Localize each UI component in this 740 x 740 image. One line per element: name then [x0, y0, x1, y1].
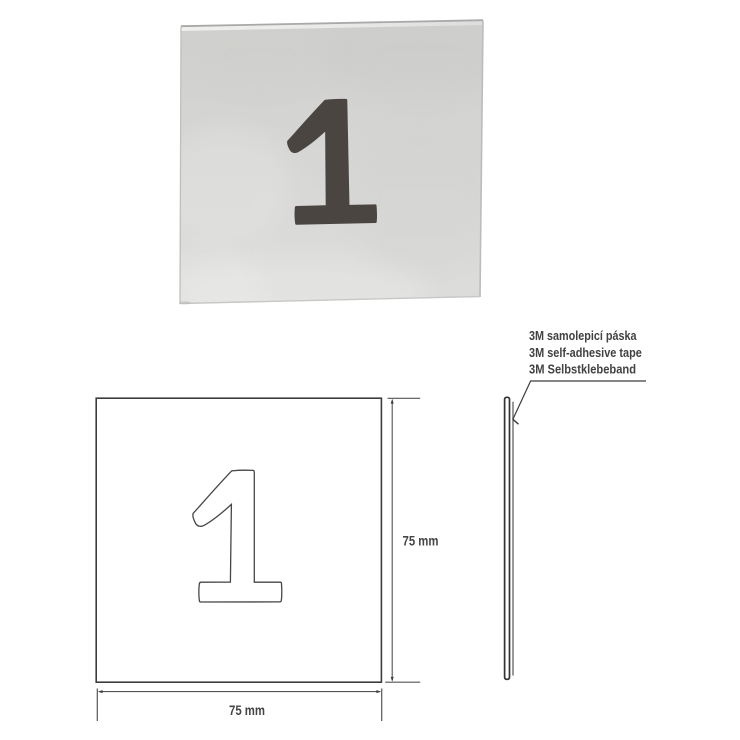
svg-text:75 mm: 75 mm — [229, 702, 265, 718]
svg-text:75 mm: 75 mm — [403, 533, 439, 549]
svg-text:3M Selbstklebeband: 3M Selbstklebeband — [529, 362, 636, 377]
svg-text:3M samolepicí páska: 3M samolepicí páska — [529, 328, 637, 343]
svg-text:3M self-adhesive tape: 3M self-adhesive tape — [529, 345, 642, 360]
